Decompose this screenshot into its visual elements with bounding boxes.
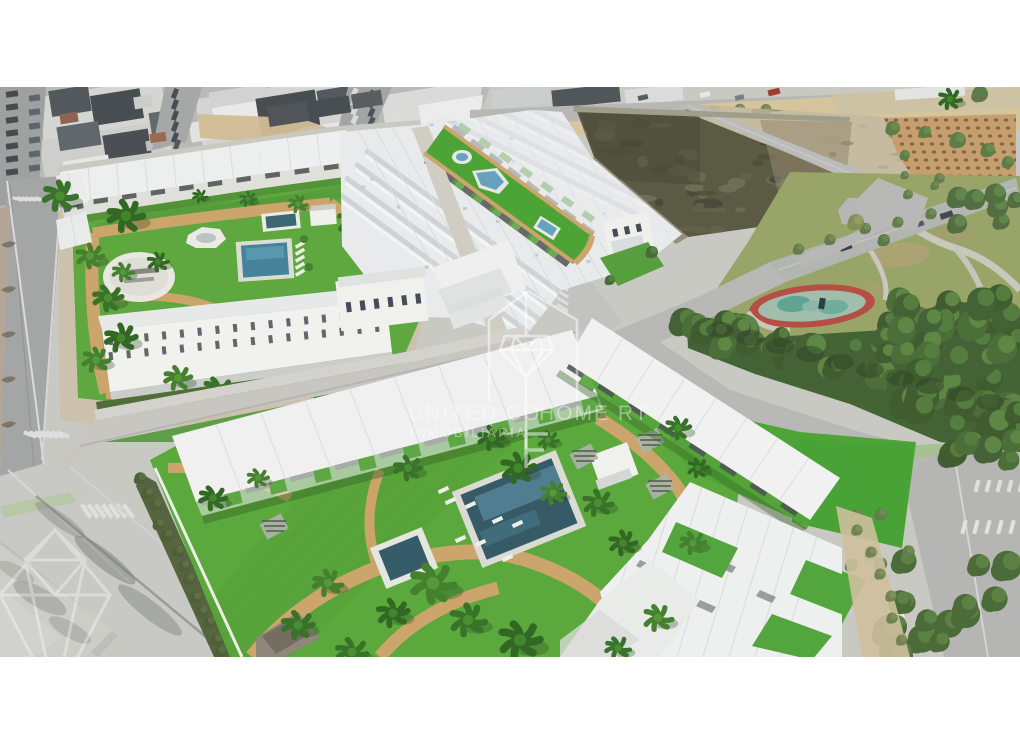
- svg-text:HOME RT: HOME RT: [539, 402, 649, 425]
- svg-text:INMOBILIARIA: INMOBILIARIA: [410, 425, 527, 440]
- svg-text:UNITED CO: UNITED CO: [408, 402, 542, 425]
